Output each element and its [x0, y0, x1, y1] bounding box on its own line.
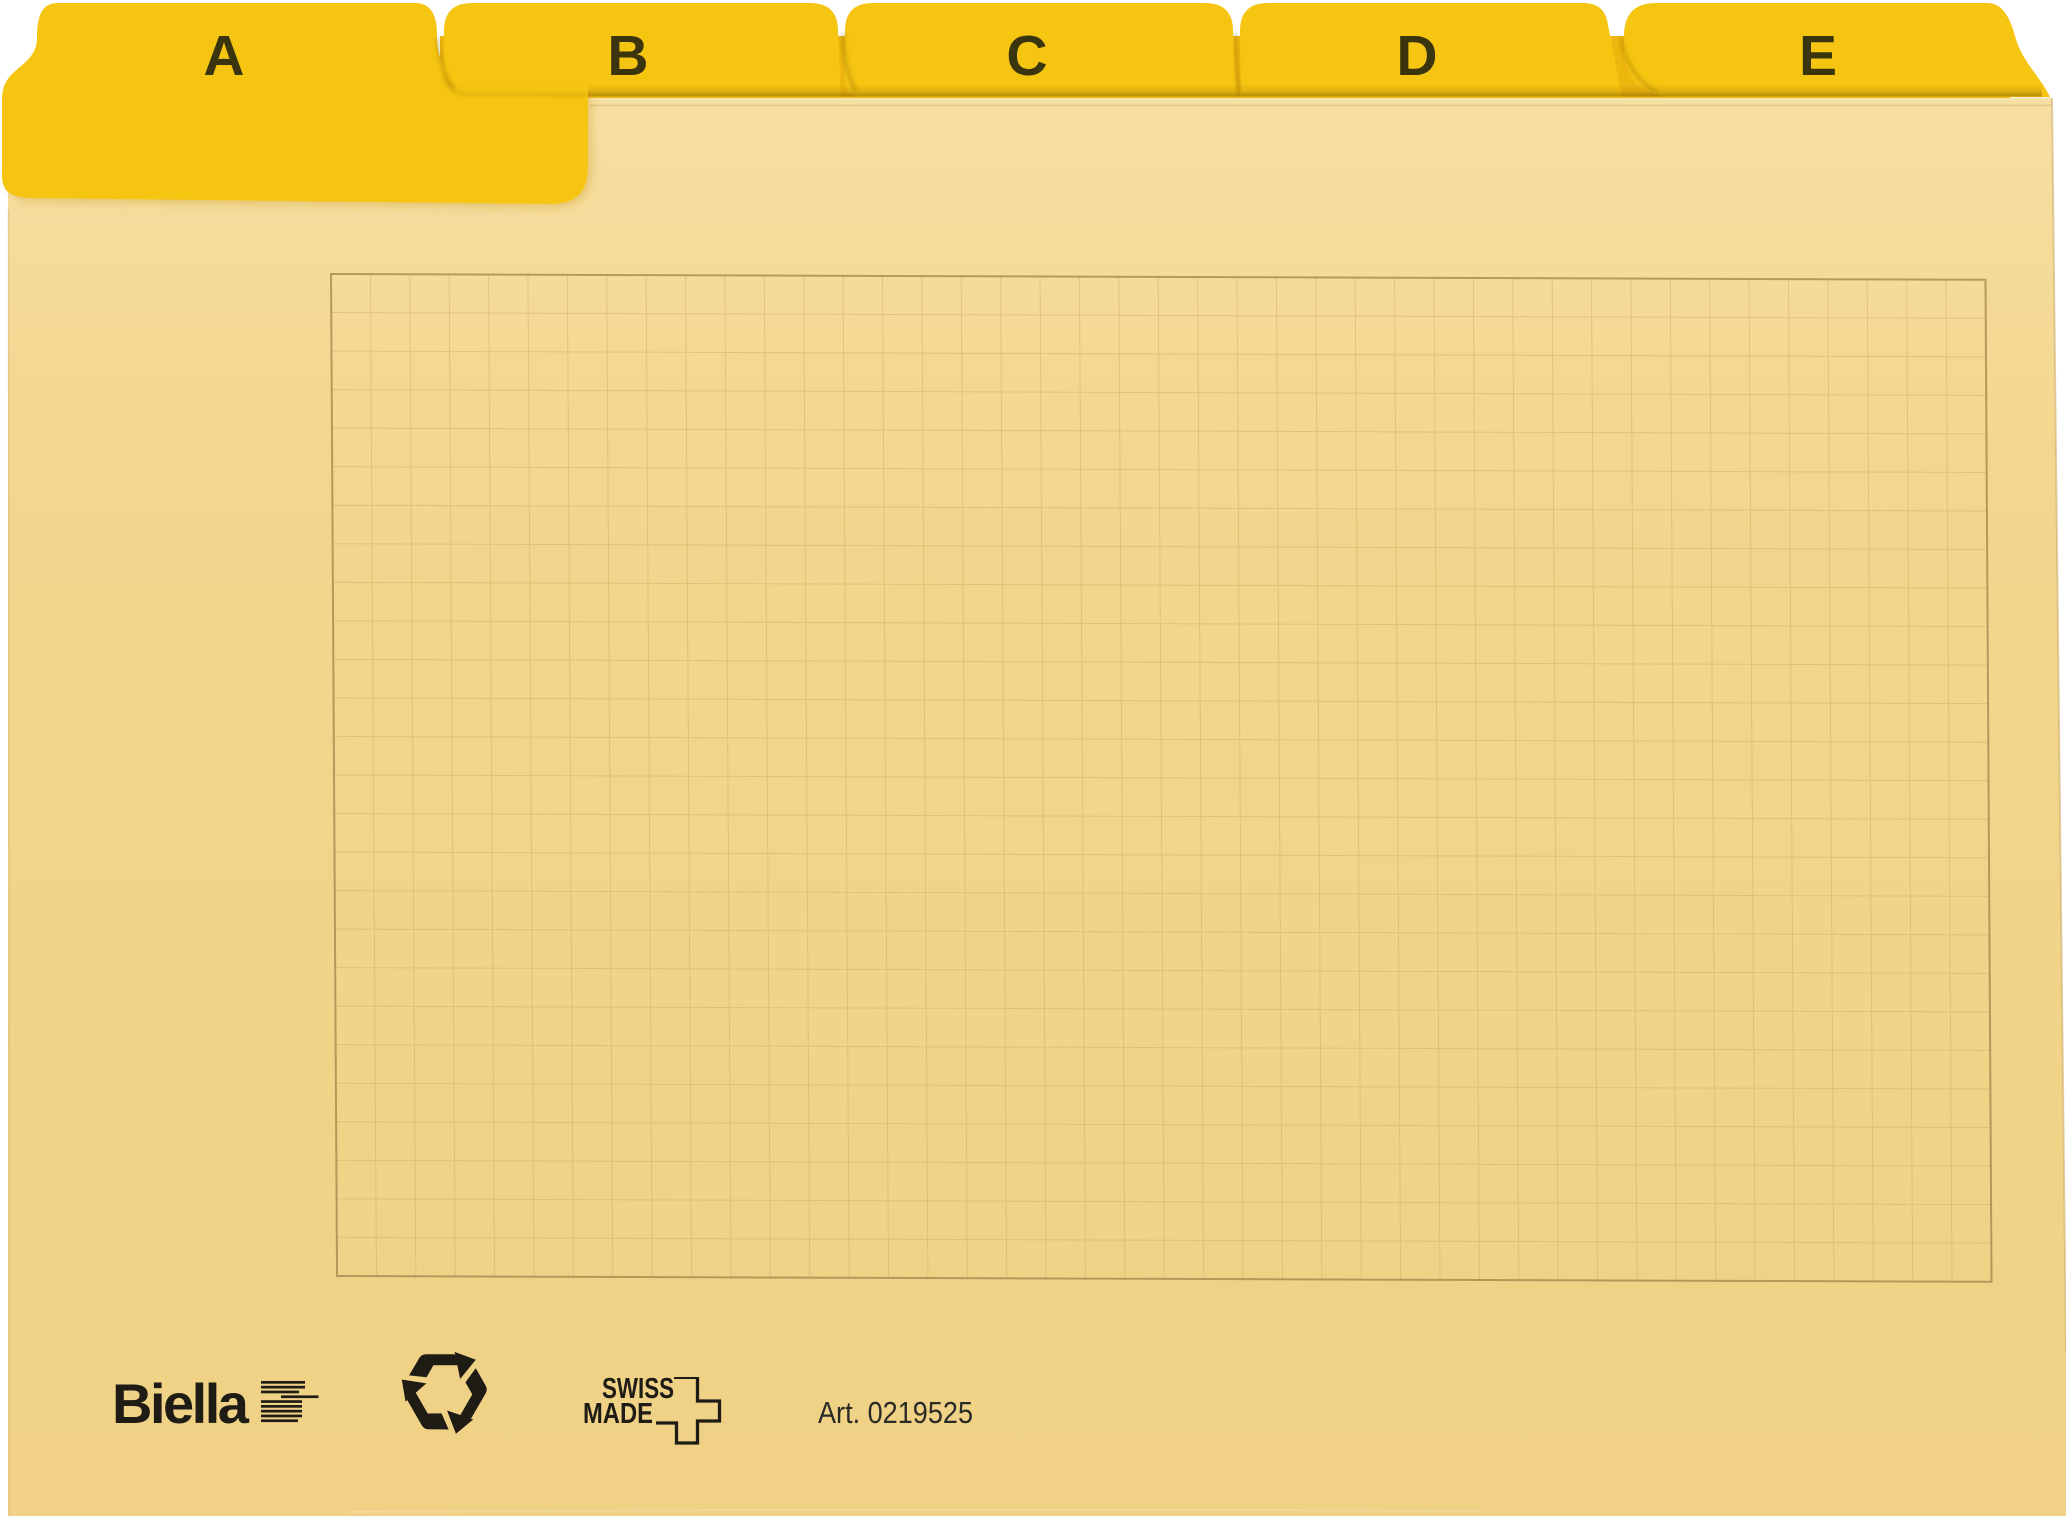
svg-text:D: D	[1396, 24, 1437, 88]
svg-text:C: C	[1006, 24, 1047, 88]
svg-text:B: B	[607, 24, 648, 88]
svg-text:MADE: MADE	[583, 1398, 653, 1430]
svg-text:Biella: Biella	[112, 1372, 250, 1435]
svg-text:E: E	[1799, 24, 1837, 88]
svg-text:A: A	[203, 24, 244, 88]
svg-text:Art. 0219525: Art. 0219525	[818, 1395, 973, 1430]
